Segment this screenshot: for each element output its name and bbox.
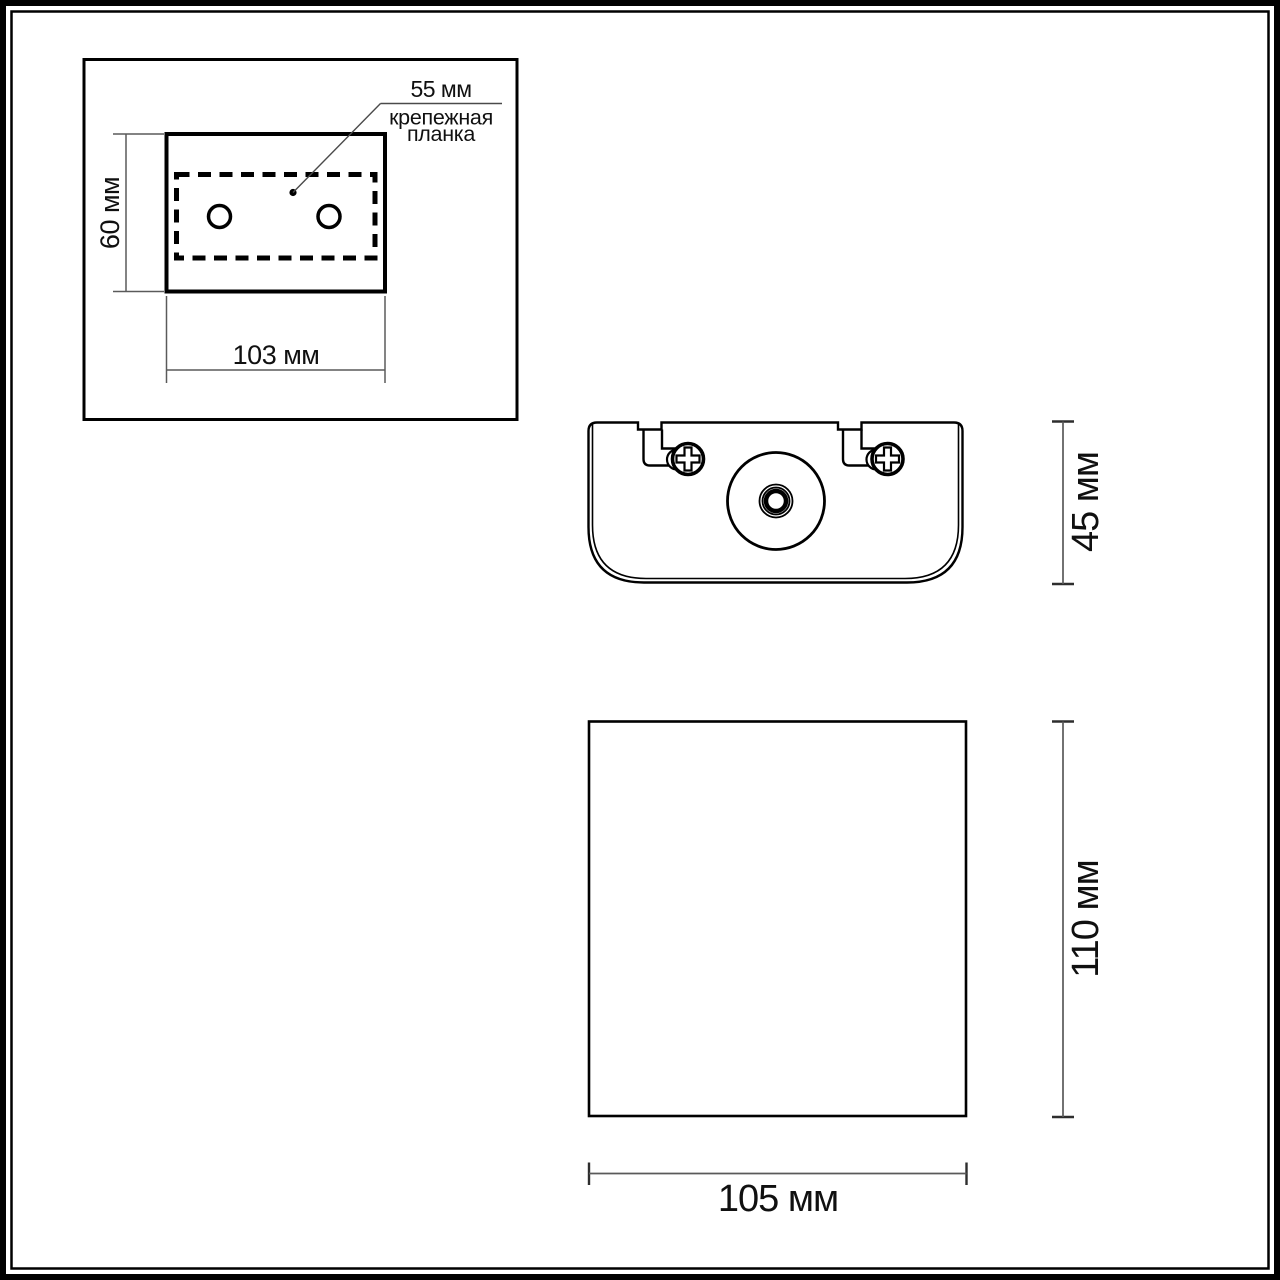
mounting-plate-callout-line2: планка [407, 122, 475, 146]
mounting-hole-right [318, 206, 340, 228]
lamp-base-outline [167, 134, 386, 292]
mounting-bracket-right [843, 430, 903, 475]
callout-leader-line [293, 104, 381, 193]
cable-entry-hole [766, 491, 786, 511]
dimension-drawing-canvas: 55 мм крепежная планка 60 мм 103 мм [0, 0, 1280, 1280]
front-view-outline [589, 722, 966, 1117]
mounting-plate-dashed-outline [177, 175, 376, 259]
dimension-45mm: 45 мм [1052, 422, 1107, 585]
mounting-hole-left [209, 206, 231, 228]
technical-drawing-page: 55 мм крепежная планка 60 мм 103 мм [0, 0, 1280, 1280]
dimension-110mm: 110 мм [1052, 722, 1107, 1118]
fixture-top-view: 45 мм [589, 422, 1108, 585]
mounting-bracket-left [644, 430, 704, 475]
dimension-60mm: 60 мм [95, 134, 164, 292]
frame-outer-border [3, 3, 1277, 1277]
detail-width-label: 103 мм [233, 340, 320, 370]
page-frame [3, 3, 1277, 1277]
front-view-width-label: 105 мм [718, 1178, 838, 1220]
cable-entry-assembly [728, 453, 825, 550]
top-view-depth-label: 45 мм [1065, 452, 1107, 552]
dimension-105mm: 105 мм [589, 1163, 967, 1221]
plate-width-label: 55 мм [410, 76, 471, 102]
fixture-front-view: 110 мм 105 мм [589, 722, 1107, 1221]
frame-inner-border [12, 12, 1269, 1269]
front-view-height-label: 110 мм [1065, 860, 1107, 977]
cable-entry-plate [728, 453, 825, 550]
mounting-detail-view: 55 мм крепежная планка 60 мм 103 мм [84, 60, 517, 420]
dimension-103mm: 103 мм [167, 296, 386, 383]
detail-height-label: 60 мм [95, 177, 125, 249]
housing-inner-wall-line [593, 424, 959, 579]
